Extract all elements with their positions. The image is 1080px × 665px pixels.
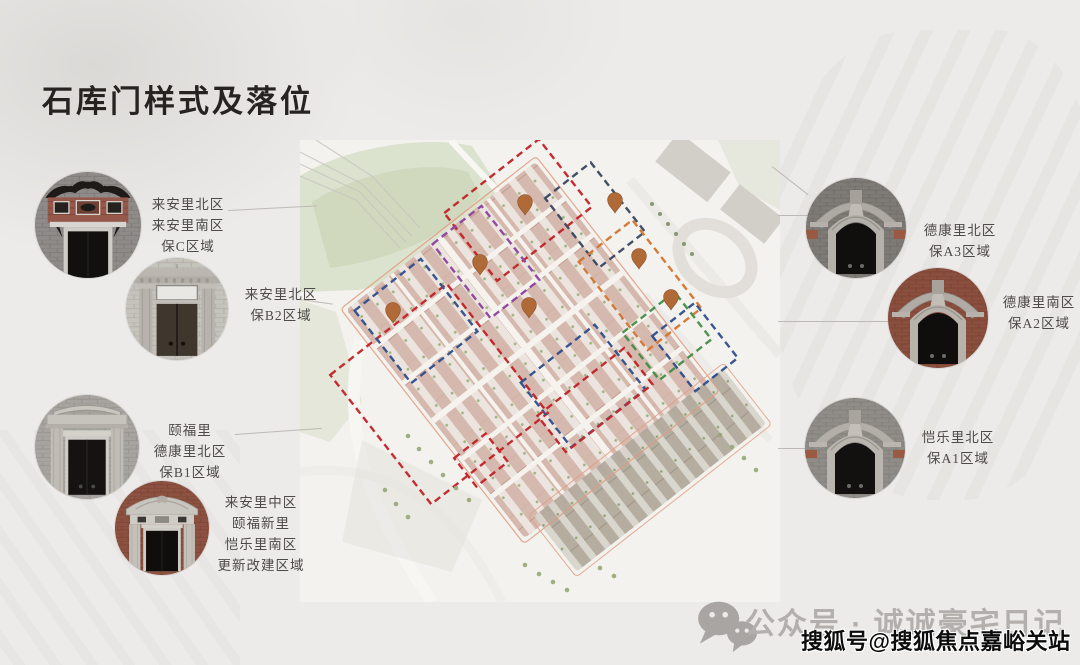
page-title: 石库门样式及落位	[42, 76, 314, 121]
callout-renewal: 来安里中区 颐福新里 恺乐里南区 更新改建区域	[205, 492, 317, 576]
callout-line: 来安里南区	[140, 215, 236, 236]
site-plan-map	[300, 140, 780, 602]
callout-bao-a2: 德康里南区 保A2区域	[993, 292, 1080, 334]
callout-line: 恺乐里北区	[912, 427, 1004, 448]
callout-line: 保A2区域	[993, 313, 1080, 334]
callout-bao-b2: 来安里北区 保B2区域	[233, 284, 329, 326]
callout-line: 颐福里	[142, 420, 238, 441]
callout-line: 德康里北区	[142, 441, 238, 462]
leader-line	[778, 321, 888, 322]
gate-photo-renewal	[115, 481, 209, 575]
callout-bao-c: 来安里北区 来安里南区 保C区域	[140, 194, 236, 257]
callout-line: 保C区域	[140, 236, 236, 257]
gate-photo-bao-a1	[805, 398, 905, 498]
callout-line: 保B2区域	[233, 305, 329, 326]
callout-bao-a1: 恺乐里北区 保A1区域	[912, 427, 1004, 469]
leader-line	[778, 215, 808, 216]
marble-texture	[300, 0, 630, 140]
sohu-watermark: 搜狐号@搜狐焦点嘉峪关站	[801, 624, 1070, 656]
callout-line: 颐福新里	[205, 513, 317, 534]
callout-line: 保A1区域	[912, 448, 1004, 469]
callout-line: 德康里南区	[993, 292, 1080, 313]
callout-line: 更新改建区域	[205, 555, 317, 576]
slide: 石库门样式及落位	[0, 0, 1080, 665]
callout-line: 德康里北区	[912, 220, 1008, 241]
gate-photo-bao-b1	[35, 395, 139, 499]
leader-line	[778, 448, 807, 449]
callout-line: 保B1区域	[142, 462, 238, 483]
gate-photo-bao-a2	[888, 268, 988, 368]
callout-line: 来安里北区	[233, 284, 329, 305]
callout-bao-b1: 颐福里 德康里北区 保B1区域	[142, 420, 238, 483]
gate-photo-bao-c	[35, 172, 141, 278]
site-plan-illustration	[300, 140, 780, 602]
callout-line: 保A3区域	[912, 241, 1008, 262]
gate-photo-bao-b2	[126, 258, 228, 360]
callout-line: 恺乐里南区	[205, 534, 317, 555]
callout-line: 来安里北区	[140, 194, 236, 215]
gate-photo-bao-a3	[806, 178, 906, 278]
callout-bao-a3: 德康里北区 保A3区域	[912, 220, 1008, 262]
callout-line: 来安里中区	[205, 492, 317, 513]
